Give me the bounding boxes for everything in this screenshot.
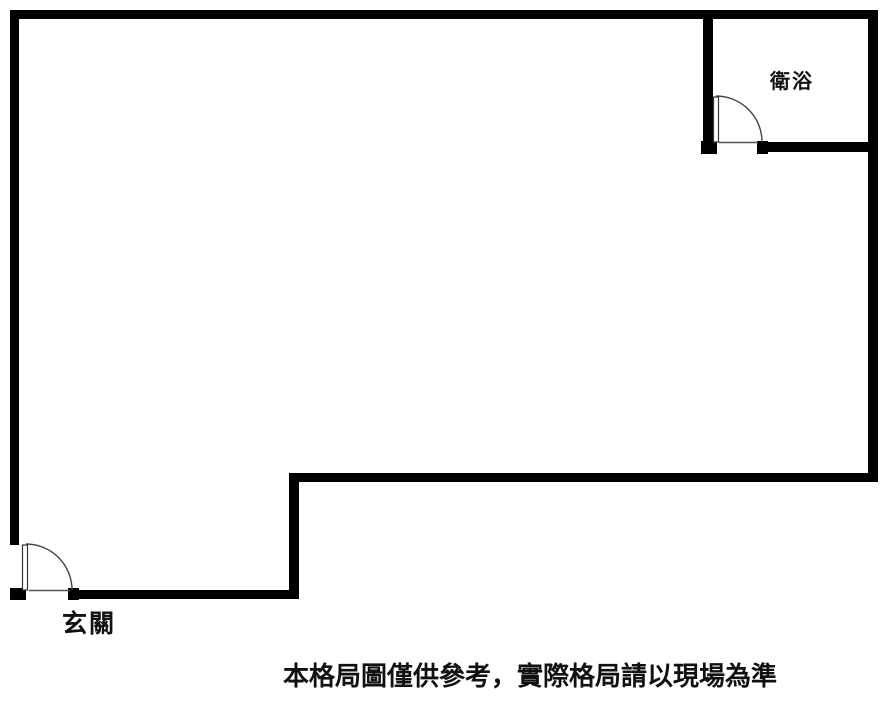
bathroom-door-jamb-left [701,141,717,154]
bathroom-label: 衛浴 [770,72,814,92]
wall-top [10,10,878,19]
wall-step-horizontal [289,473,878,482]
entrance-label: 玄關 [62,612,116,637]
bathroom-door-arc-icon [716,96,762,142]
entrance-door-arc-icon [26,544,72,590]
bathroom-wall-left [703,10,713,152]
bathroom-door-jamb-right [757,141,768,154]
wall-left [10,10,19,545]
entrance-door-jamb-right [68,588,79,600]
bathroom-wall-bottom [758,142,878,152]
wall-step-vertical [289,473,299,599]
wall-right [868,10,878,482]
bathroom-door [714,96,763,143]
entrance-door [23,544,73,591]
entrance-door-jamb-left [10,588,26,600]
bathroom-door-leaf [714,97,719,142]
entrance-door-leaf [23,545,28,590]
floor-plan: 衛浴 玄關 本格局圖僅供參考，實際格局請以現場為準 [0,0,888,704]
wall-bottom [68,590,299,599]
disclaimer-text: 本格局圖僅供參考，實際格局請以現場為準 [283,661,783,692]
